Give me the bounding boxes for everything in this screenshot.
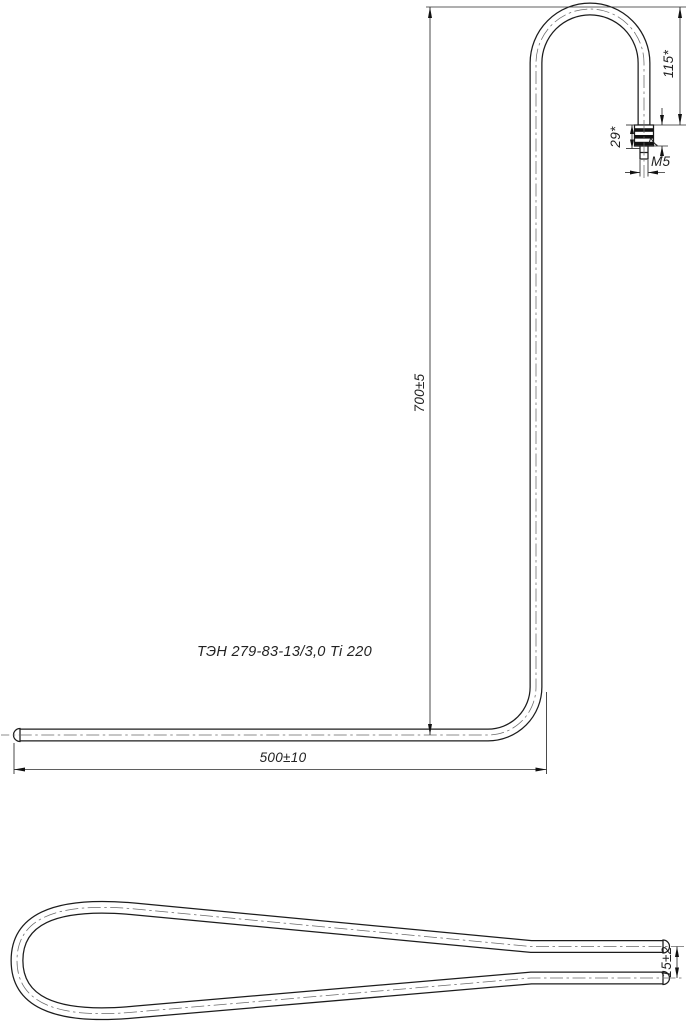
tube-top-outline	[17, 907, 670, 1013]
dimension-label: M5	[651, 154, 671, 169]
dimension-label: 115*	[661, 50, 676, 78]
dimension-hook-drop: 115*	[653, 7, 686, 125]
arrowhead	[675, 947, 679, 958]
dimension-label: 29*	[608, 126, 623, 149]
arrowhead	[14, 768, 25, 772]
main-view: 700±5 115* 29* 7	[1, 7, 686, 774]
technical-drawing: 700±5 115* 29* 7	[0, 0, 688, 1024]
part-label: ТЭН 279-83-13/3,0 Ti 220	[197, 644, 372, 660]
tube-centerline	[1, 9, 644, 735]
tube-side-outline	[14, 9, 645, 742]
tube-outer	[20, 9, 644, 735]
arrowhead	[678, 7, 682, 18]
arrowhead	[536, 768, 547, 772]
arrowhead	[630, 125, 634, 134]
arrowhead	[678, 114, 682, 125]
drawing-canvas: 700±5 115* 29* 7	[0, 0, 688, 1024]
dimension-label: 700±5	[412, 373, 427, 412]
arrowhead	[660, 115, 664, 125]
tube-bore	[20, 9, 644, 735]
dimension-end-spacing: 15±2	[659, 946, 679, 978]
arrowhead	[630, 140, 634, 149]
arrowhead	[428, 7, 432, 18]
top-view: 15±2	[17, 907, 684, 1013]
arrowhead	[648, 171, 658, 175]
tube-bore	[17, 907, 663, 1013]
dimension-label: 15±2	[659, 946, 674, 977]
dimension-label: 500±10	[260, 750, 307, 765]
arrowhead	[675, 968, 679, 979]
arrowhead	[630, 171, 640, 175]
